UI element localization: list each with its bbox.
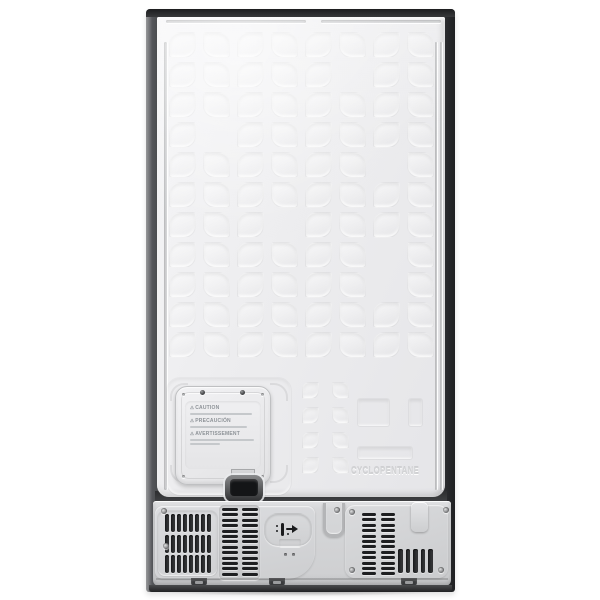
compressor-cover [153,501,451,586]
vent-slot [398,549,403,573]
vent-slat [222,551,238,554]
vent-slat [362,545,376,548]
vent-slat [381,535,395,538]
leaf-emboss-cell [305,182,332,208]
leaf-emboss-cell [332,407,349,424]
embossed-rect-2 [408,398,423,427]
leaf-emboss-cell [237,212,264,238]
vent-slat [222,540,238,543]
leaf-emboss-cell [203,272,230,298]
leaf-emboss-cell [237,242,264,268]
leaf-emboss-cell [305,62,332,88]
leaf-emboss-cell [169,212,196,238]
leaf-emboss-cell [203,62,230,88]
rivet-icon [292,553,295,556]
vent-slat [222,562,238,565]
vent-slat [242,567,258,570]
vent-slat [242,535,258,538]
vent-slot [189,514,193,532]
leaf-emboss-cell [203,302,230,328]
screw-icon [161,508,167,514]
access-panel-cover: ⚠ CAUTION ⚠ PRECAUCIÓN ⚠ AVERTISSEMENT [175,386,271,485]
warning-text-line [190,443,220,445]
screw-icon [163,543,169,549]
vent-slot [207,514,211,532]
vent-slat [242,530,258,533]
vent-slot [171,535,175,553]
leaf-emboss-cell [169,152,196,178]
edge-groove-right-inner [440,42,442,490]
vent-slat [222,530,238,533]
leaf-emboss-cell [271,32,298,58]
warning-heading: ⚠ CAUTION [190,406,256,411]
cyclopentane-embossed-text: CYCLOPENTANE [351,465,418,478]
refrigerator-back: CYCLOPENTANE ⚠ CAUTION [146,9,455,592]
leaf-emboss-cell [339,302,366,328]
vent-slat [242,524,258,527]
vent-slot [201,514,205,532]
warning-triangle-icon: ⚠ [190,432,194,437]
leaf-emboss-cell [339,92,366,118]
vent-slat [381,529,395,532]
vent-slot [195,555,199,573]
vent-slot [428,549,433,573]
leaf-emboss-cell [339,242,366,268]
vent-slat [362,535,376,538]
top-groove-left [166,20,306,23]
vent-slat [242,546,258,549]
leaf-emboss-cell [302,457,319,474]
warning-item: ⚠ CAUTION [190,406,256,415]
leaf-emboss-cell [169,32,196,58]
vent-slat [222,519,238,522]
leaf-emboss-cell [237,182,264,208]
leaf-emboss-cell [305,152,332,178]
leaf-emboss-cell [407,302,434,328]
water-line-clip-cavity [230,479,258,496]
vent-slat [362,513,376,516]
vent-slat [242,508,258,511]
vent-slot [177,514,181,532]
leaf-emboss-cell [407,152,434,178]
vent-slot [421,549,426,573]
leaf-emboss-cell [332,432,349,449]
warning-triangle-icon: ⚠ [190,406,194,411]
vent-slot [189,535,193,553]
vent-slat [381,562,395,565]
leaf-emboss-cell [407,242,434,268]
leaf-emboss-cell [203,92,230,118]
vent-slat [381,556,395,559]
vent-slat [381,540,395,543]
screw-icon [349,509,355,515]
embossed-bar [357,446,413,460]
warning-label: ⚠ CAUTION ⚠ PRECAUCIÓN ⚠ AVERTISSEMENT [185,401,261,469]
embossed-rect-1 [357,398,390,427]
leaf-emboss-cell [302,432,319,449]
leaf-emboss-cell [339,212,366,238]
vent-slat [242,551,258,554]
leaf-emboss-cell [271,62,298,88]
vent-grille-slats-left [219,505,260,580]
vent-slot [183,514,187,532]
vent-slat [362,540,376,543]
vent-slot [165,514,169,532]
leaf-emboss-cell [305,212,332,238]
vent-slat [381,545,395,548]
leaf-emboss-cell [237,122,264,148]
cover-right-panel [345,505,448,578]
leaf-emboss-cell [237,62,264,88]
plug-icon [276,523,301,536]
rivet-icon [182,393,185,396]
vent-slot-grid-right [398,549,433,573]
leaf-emboss-cell [169,242,196,268]
leaf-emboss-cell [237,152,264,178]
vent-slat [362,551,376,554]
vent-slat [362,572,376,575]
leaf-emboss-cell [305,122,332,148]
vent-slot [406,549,411,573]
vent-slat [381,524,395,527]
water-line-clip [225,475,263,502]
vent-slot [207,555,211,573]
leaf-emboss-cell [407,332,434,358]
leaf-emboss-cell [302,382,319,399]
vent-slat-grid [362,513,395,575]
leaf-emboss-cell [203,332,230,358]
leaf-emboss-cell [203,32,230,58]
vent-slat [362,556,376,559]
leaf-emboss-cell [203,152,230,178]
vent-slat [362,529,376,532]
base-plinth [149,585,452,592]
leaf-emboss-cell [271,302,298,328]
vent-slat [362,562,376,565]
leaf-emboss-cell [339,152,366,178]
vent-slat [242,513,258,516]
vent-slot-grid [165,514,211,573]
leaf-emboss-cell [305,302,332,328]
leaf-emboss-cell [339,122,366,148]
leaf-emboss-cell [169,332,196,358]
leaf-emboss-cell [332,382,349,399]
screw-icon [443,507,449,513]
vent-slat [222,567,238,570]
leaf-emboss-cell [271,122,298,148]
leaf-emboss-cell [237,32,264,58]
mounting-tab [411,502,428,532]
vent-slot [183,555,187,573]
screw-icon [334,507,340,513]
leaf-emboss-cell [339,182,366,208]
vent-slat [222,524,238,527]
leaf-emboss-cell [373,302,400,328]
leaf-emboss-cell [169,92,196,118]
vent-slat [381,518,395,521]
screw-icon [200,390,205,395]
leaf-emboss-cell [407,122,434,148]
leaf-emboss-cell [373,62,400,88]
leaf-emboss-cell [373,32,400,58]
leaf-emboss-cell [203,212,230,238]
leaf-emboss-pattern [169,32,434,358]
vent-slat [242,540,258,543]
leaf-emboss-cell [169,272,196,298]
rivet-icon [284,553,287,556]
leaf-emboss-cell [237,332,264,358]
leaf-emboss-cell [373,182,400,208]
vent-slat [222,573,238,576]
warning-title: AVERTISSEMENT [195,432,240,437]
leaf-emboss-cell [373,122,400,148]
vent-slot [195,535,199,553]
rivet-icon [182,475,185,478]
vent-slat [222,513,238,516]
rivet-icon [261,393,264,396]
vent-slat [381,551,395,554]
leaf-emboss-cell [169,122,196,148]
vent-slot [183,535,187,553]
vent-slot [201,535,205,553]
vent-grille-slats-right [362,513,402,575]
warning-text-line [190,426,247,428]
leaf-emboss-cell [271,92,298,118]
leaf-emboss-cell [302,407,319,424]
leaf-emboss-cell [407,272,434,298]
warning-heading: ⚠ AVERTISSEMENT [190,432,256,437]
leaf-emboss-cell [339,32,366,58]
leaf-emboss-cell [237,272,264,298]
warning-item: ⚠ AVERTISSEMENT [190,432,256,445]
leaf-emboss-cell [237,92,264,118]
vent-slat [381,567,395,570]
vent-slat [242,562,258,565]
warning-text-line [190,439,254,441]
leaf-emboss-cell [407,212,434,238]
vent-slot [171,555,175,573]
vent-slat [242,519,258,522]
leaf-emboss-cell [203,182,230,208]
warning-heading: ⚠ PRECAUCIÓN [190,419,256,424]
leaf-emboss-cell [305,242,332,268]
vent-slat [362,518,376,521]
vent-slat [242,557,258,560]
leaf-emboss-cell [271,272,298,298]
warning-text-line [190,413,252,415]
vent-slat [362,524,376,527]
warning-title: CAUTION [195,406,219,411]
vent-slot [201,555,205,573]
edge-groove-right-outer [435,42,437,490]
warning-item: ⚠ PRECAUCIÓN [190,419,256,428]
leaf-emboss-cell [339,272,366,298]
leaf-emboss-cell [305,332,332,358]
vent-slot [195,514,199,532]
leaf-emboss-cell [203,242,230,268]
photo-background: { "fridge": { "rear_panel": { "embossed_… [0,0,600,600]
leaf-emboss-cell [407,62,434,88]
vent-slat [362,567,376,570]
leaf-emboss-cell [332,457,349,474]
leaf-emboss-cell [407,32,434,58]
leaf-emboss-cell [339,332,366,358]
leaf-emboss-cell [169,182,196,208]
warning-title: PRECAUCIÓN [195,419,231,424]
vent-slat-grid [222,508,258,576]
vent-slot [165,555,169,573]
leaf-emboss-cell [305,272,332,298]
vent-slat [222,535,238,538]
vent-slat [222,557,238,560]
leaf-emboss-cell [373,92,400,118]
embossed-slot [279,539,301,548]
vent-slot [189,555,193,573]
leaf-emboss-cell [271,182,298,208]
leaf-emboss-cell [373,332,400,358]
vent-slot [171,514,175,532]
warning-triangle-icon: ⚠ [190,419,194,424]
vent-slat [381,513,395,516]
vent-slat [242,573,258,576]
top-frame-cap [146,9,455,17]
leaf-emboss-cell [407,182,434,208]
vent-slat [222,546,238,549]
leaf-emboss-cell [169,62,196,88]
leaf-emboss-cell [305,92,332,118]
leaf-emboss-cell [373,212,400,238]
leaf-emboss-cell [271,152,298,178]
rear-panel: CYCLOPENTANE ⚠ CAUTION [157,17,445,497]
top-groove-right [321,20,441,23]
vent-slat [222,508,238,511]
leaf-emboss-cell [305,32,332,58]
screw-icon [438,567,444,573]
leaf-emboss-cell [407,92,434,118]
leaf-emboss-cell [271,332,298,358]
leaf-emboss-cell [271,242,298,268]
vent-slot [207,535,211,553]
vent-slot [177,555,181,573]
vent-slat [381,572,395,575]
vent-slot [413,549,418,573]
vent-slot [177,535,181,553]
screw-icon [349,567,355,573]
leaf-emboss-cell [237,302,264,328]
leaf-emboss-cell [169,302,196,328]
screw-icon [240,390,245,395]
mini-leaf-emboss-pattern [302,382,349,474]
